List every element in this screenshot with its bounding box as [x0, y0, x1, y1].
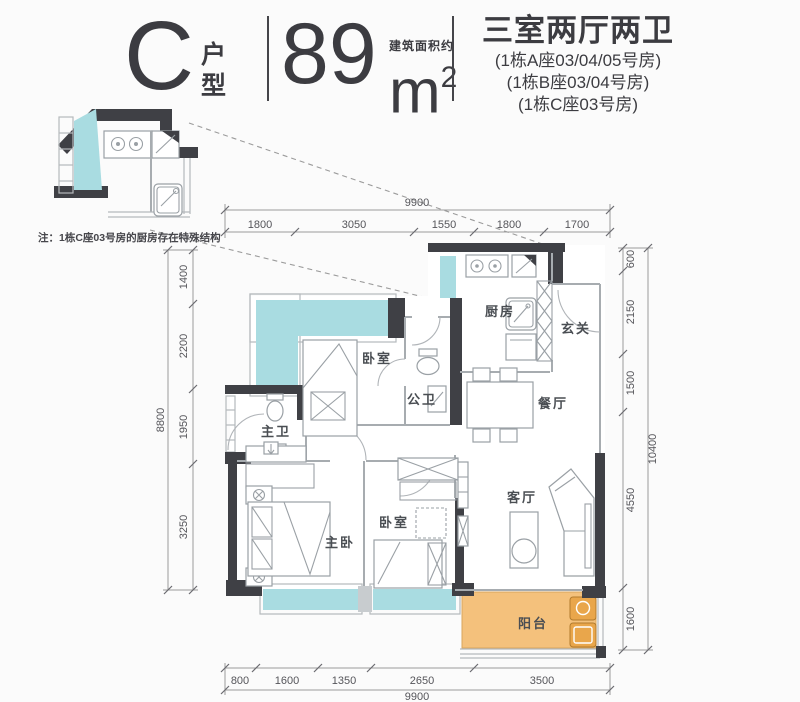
window-pier: [358, 586, 372, 612]
inset-window-frame: [59, 117, 73, 193]
room-label-entry: 玄关: [561, 321, 591, 336]
dim-bottom-2: 1600: [275, 675, 299, 687]
washer-icon: [570, 597, 596, 620]
inset-note: 注：1栋C座03号房的厨房存在特殊结构: [38, 231, 221, 244]
dim-bottom-5: 3500: [530, 675, 554, 687]
dim-top-4: 1800: [497, 219, 521, 231]
dining-chair: [500, 368, 517, 381]
floor-plan-svg: 注：1栋C座03号房的厨房存在特殊结构: [0, 0, 800, 702]
room-label-bedroom2: 卧室: [379, 515, 409, 530]
master-window: [263, 589, 360, 610]
dining-chair: [473, 368, 490, 381]
bath1-toilet-icon: [267, 394, 283, 400]
bedroom2-window: [373, 589, 456, 610]
dim-right-2: 2150: [625, 300, 637, 324]
dim-top-total: 9900: [405, 197, 429, 209]
dim-right-total: 10400: [647, 434, 659, 465]
room-label-master: 主卧: [325, 535, 355, 550]
kitchen-counter-icon: [506, 334, 536, 360]
dim-right-3: 1500: [625, 371, 637, 395]
inset-kitchen-plan: 注：1栋C座03号房的厨房存在特殊结构: [38, 109, 221, 244]
dim-right-5: 1600: [625, 607, 637, 631]
dim-left-total: 8800: [155, 408, 167, 432]
dim-top-5: 1700: [565, 219, 589, 231]
inset-bay-window: [74, 109, 102, 190]
dining-chair: [473, 429, 490, 442]
dim-top-2: 3050: [342, 219, 366, 231]
dim-right-4: 4550: [625, 488, 637, 512]
room-label-dining: 餐厅: [537, 396, 568, 411]
stove-icon: [466, 255, 508, 277]
room-label-bath1: 主卫: [261, 424, 291, 439]
kitchen-window: [440, 256, 456, 298]
dining-table: [467, 382, 533, 428]
room-label-kitchen: 厨房: [485, 304, 515, 319]
room-label-living: 客厅: [507, 490, 537, 505]
room-label-bath2: 公卫: [407, 392, 437, 407]
dining-chair: [500, 429, 517, 442]
dim-left-1: 1400: [178, 265, 190, 289]
bedroom2-bed: [374, 540, 442, 588]
dim-left-4: 3250: [178, 515, 190, 539]
room-label-bedroom-top: 卧室: [362, 351, 392, 366]
bath2-toilet-icon: [419, 349, 437, 356]
dim-left-3: 1950: [178, 415, 190, 439]
dim-top-1: 1800: [248, 219, 272, 231]
dim-top-3: 1550: [432, 219, 456, 231]
dim-bottom-total: 9900: [405, 691, 429, 702]
dim-bottom-1: 800: [231, 675, 249, 687]
dim-left-2: 2200: [178, 334, 190, 358]
side-table: [512, 539, 536, 563]
dim-bottom-3: 1350: [332, 675, 356, 687]
dim-bottom-4: 2650: [410, 675, 434, 687]
dim-right-1: 600: [625, 250, 637, 268]
tv-cabinet: [458, 462, 468, 508]
room-label-balcony: 阳台: [518, 616, 548, 631]
